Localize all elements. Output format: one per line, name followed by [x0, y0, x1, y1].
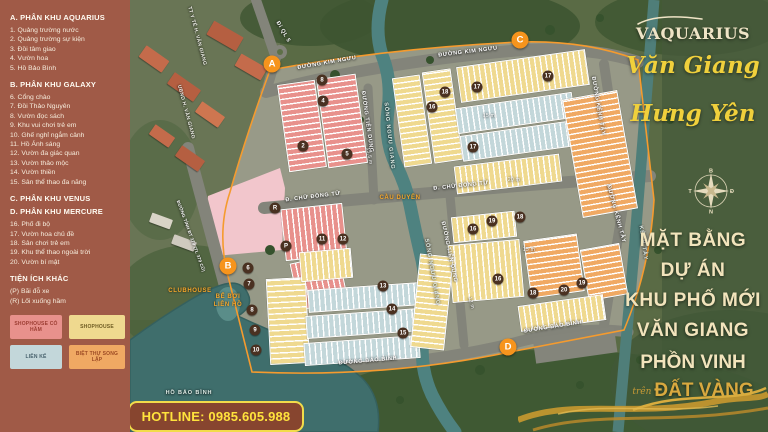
section-heading: D. PHÂN KHU MERCURE [10, 207, 122, 216]
sidebar-section: C. PHÂN KHU VENUSD. PHÂN KHU MERCURE16. … [10, 194, 122, 267]
legend-item: 20. Vườn bí mật [10, 258, 122, 267]
legend-item: 6. Cổng chào [10, 93, 122, 102]
legend-swatches: SHOPHOUSE CÓ HẦMSHOPHOUSELIÊN KẾBIỆT THỰ… [10, 315, 122, 369]
sidebar-section: TIỆN ÍCH KHÁC(P) Bãi đỗ xe(R) Lối xuống … [10, 274, 122, 306]
masterplan-poster: ĐƯỜNG KIM NGƯUĐƯỜNG KIM NGƯUĐƯỜNG TIÊN D… [0, 0, 768, 432]
legend-sidebar: A. PHÂN KHU AQUARIUS1. Quảng trường nước… [0, 0, 130, 432]
hotline-banner: HOTLINE: 0985.605.988 [128, 401, 304, 432]
legend-swatch-h: SHOPHOUSE CÓ HẦM [10, 315, 62, 339]
legend-item: 1. Quảng trường nước [10, 26, 122, 35]
legend-item: 5. Hồ Bảo Bình [10, 64, 122, 73]
legend-item: 9. Khu vui chơi trẻ em [10, 121, 122, 130]
legend-item: (R) Lối xuống hầm [10, 297, 122, 306]
legend-item: 16. Phố đi bộ [10, 220, 122, 229]
section-heading: A. PHÂN KHU AQUARIUS [10, 13, 122, 22]
legend-swatch-b: BIỆT THỰ SONG LẬP [69, 345, 125, 369]
legend-item: 10. Ghế nghỉ ngắm cảnh [10, 131, 122, 140]
legend-item: 2. Quảng trường sự kiện [10, 35, 122, 44]
legend-item: 18. Sân chơi trẻ em [10, 239, 122, 248]
legend-item: 15. Sân thể thao đa năng [10, 178, 122, 187]
section-heading: B. PHÂN KHU GALAXY [10, 80, 122, 89]
section-heading: C. PHÂN KHU VENUS [10, 194, 122, 203]
legend-item: 13. Vườn thảo mộc [10, 159, 122, 168]
legend-item: 17. Vườn hoa chủ đề [10, 230, 122, 239]
legend-item: 7. Đồi Thảo Nguyên [10, 102, 122, 111]
section-heading: TIỆN ÍCH KHÁC [10, 274, 122, 283]
legend-item: 4. Vườn hoa [10, 54, 122, 63]
legend-item: 12. Vườn đa giác quan [10, 149, 122, 158]
legend-swatch-l: LIÊN KẾ [10, 345, 62, 369]
legend-item: 3. Đồi tâm giao [10, 45, 122, 54]
legend-item: (P) Bãi đỗ xe [10, 287, 122, 296]
legend-item: 8. Vườn đọc sách [10, 112, 122, 121]
sidebar-section: A. PHÂN KHU AQUARIUS1. Quảng trường nước… [10, 13, 122, 73]
sidebar-sections: A. PHÂN KHU AQUARIUS1. Quảng trường nước… [10, 13, 122, 306]
legend-item: 19. Khu thể thao ngoài trời [10, 248, 122, 257]
gold-brush-decoration [518, 362, 768, 432]
sidebar-section: B. PHÂN KHU GALAXY6. Cổng chào7. Đồi Thả… [10, 80, 122, 187]
legend-swatch-s: SHOPHOUSE [69, 315, 125, 339]
legend-item: 11. Hồ Ánh sáng [10, 140, 122, 149]
legend-item: 14. Vườn thiền [10, 168, 122, 177]
